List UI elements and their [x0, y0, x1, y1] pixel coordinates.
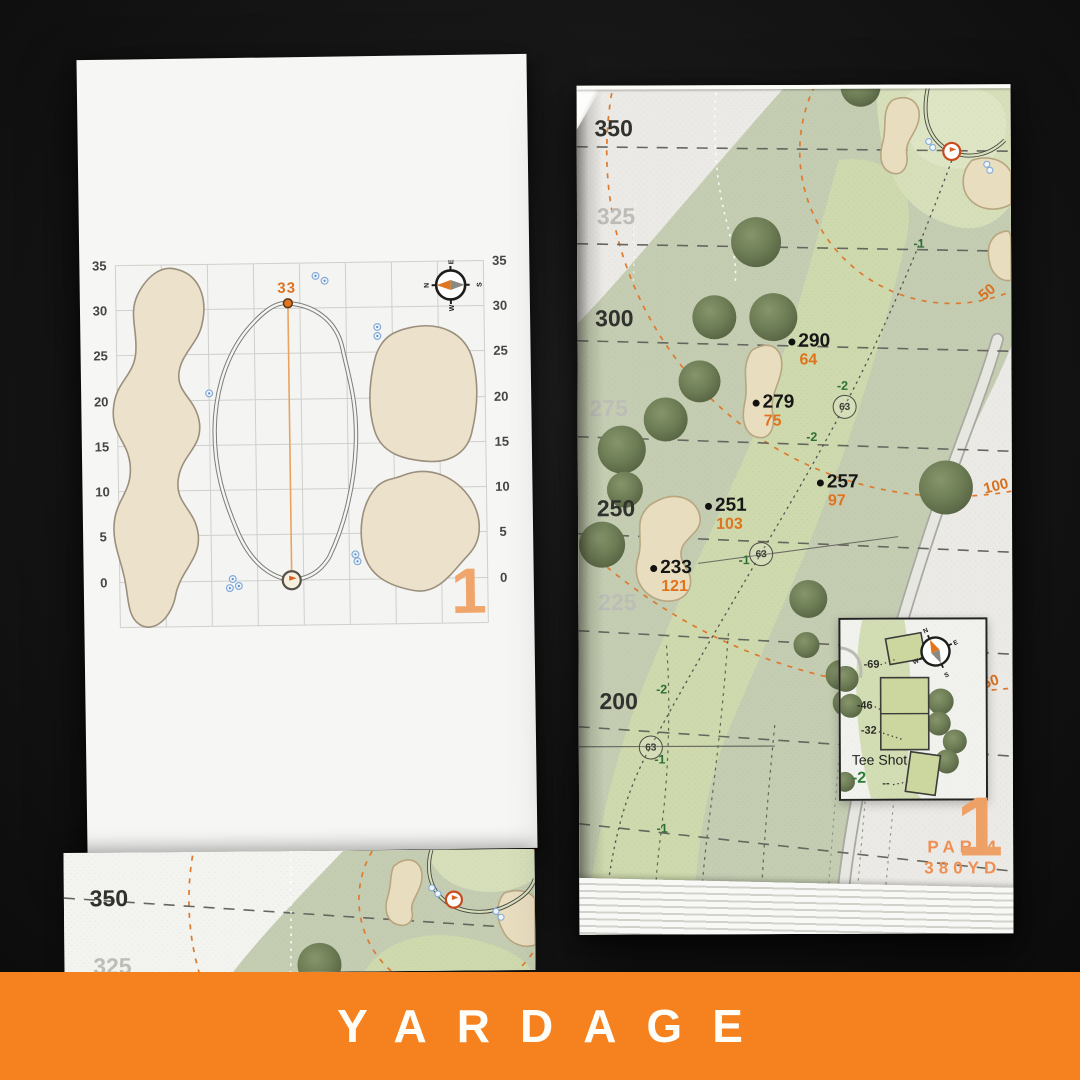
- axis-label-right: 25: [493, 343, 508, 358]
- yardage-ladder-label: 200: [599, 688, 637, 715]
- banner-title: YARDAGE: [307, 999, 773, 1053]
- axis-label-right: 30: [493, 298, 508, 313]
- center-marker: 63: [749, 542, 773, 566]
- distance-point-row: 251: [705, 495, 747, 517]
- point-distance: 290: [798, 330, 830, 352]
- yardage-ladder-label: 350: [90, 885, 129, 912]
- compass-w: W: [449, 304, 456, 311]
- green-detail-page: N E S W 3535303025252020151510105500 33 …: [76, 54, 537, 854]
- yardage-book-scene: N E S W 3535303025252020151510105500 33 …: [0, 0, 1080, 1080]
- axis-label-left: 15: [95, 439, 110, 454]
- distance-point-row: 257: [817, 471, 859, 493]
- next-hole-page: 350325: [63, 849, 535, 974]
- slope-label: -2: [656, 682, 667, 696]
- slope-label: -1: [913, 237, 924, 251]
- point-distance: 251: [715, 495, 747, 517]
- next-hole-map: [63, 849, 535, 974]
- point-front-distance: 103: [716, 516, 747, 534]
- tee-offset-label: -69: [864, 659, 880, 671]
- slope-label: -1: [739, 553, 750, 567]
- slope-label: -2: [806, 430, 817, 444]
- distance-point-row: 233: [650, 557, 692, 579]
- distance-point: 29064: [788, 330, 830, 369]
- distance-point: 233121: [650, 557, 692, 596]
- yardage-ladder-label: 350: [594, 115, 632, 142]
- hole-number: 1: [451, 559, 487, 623]
- distance-point-row: 279: [753, 392, 795, 414]
- tee-offset-label: -46: [857, 700, 873, 712]
- point-front-distance: 97: [828, 492, 859, 510]
- yardage-ladder-label: 275: [589, 395, 627, 422]
- green-depth-label: 33: [277, 280, 296, 297]
- compass-e: E: [448, 259, 455, 264]
- axis-label-left: 0: [100, 575, 107, 590]
- flag-icon: [283, 571, 301, 589]
- tee-shot-inset: N E S W -69-46-32-- Tee Shot -2: [838, 617, 988, 801]
- hole-info-block: PAR 4 380YD 1: [924, 836, 1001, 878]
- axis-label-right: 0: [500, 570, 507, 585]
- yardage-ladder-label: 325: [597, 203, 635, 230]
- axis-label-right: 15: [495, 434, 510, 449]
- axis-label-left: 25: [93, 348, 108, 363]
- axis-label-right: 20: [494, 389, 509, 404]
- slope-label: -1: [657, 821, 668, 835]
- axis-label-right: 35: [492, 253, 507, 268]
- point-front-distance: 75: [764, 413, 795, 431]
- slope-label: -2: [837, 379, 848, 393]
- point-front-distance: 64: [799, 351, 830, 369]
- yardage-ladder-label: 250: [597, 495, 635, 522]
- axis-label-right: 10: [495, 479, 510, 494]
- distance-point: 251103: [705, 495, 747, 534]
- point-front-distance: 121: [661, 578, 692, 596]
- point-distance: 257: [827, 471, 859, 493]
- distance-point-row: 290: [788, 330, 830, 352]
- tee-offset-label: --: [882, 778, 889, 790]
- distance-point: 25797: [817, 471, 859, 510]
- point-dot: [650, 565, 657, 572]
- axis-label-left: 10: [95, 484, 110, 499]
- green-detail-map: N E S W: [76, 54, 537, 854]
- flag-icon: [943, 143, 960, 160]
- axis-label-left: 20: [94, 394, 109, 409]
- title-banner: YARDAGE: [0, 972, 1080, 1080]
- tee-offset-label: -32: [861, 725, 877, 737]
- point-dot: [705, 502, 712, 509]
- tee-shot-value: -2: [852, 770, 866, 788]
- hole-map-page: 350325300275250225200 290642797525797251…: [577, 84, 1014, 935]
- axis-label-left: 35: [92, 258, 107, 273]
- point-dot: [817, 479, 824, 486]
- yardage-ladder-label: 225: [598, 589, 636, 616]
- tee-shot-title: Tee Shot: [852, 752, 907, 768]
- point-distance: 233: [660, 557, 692, 579]
- distance-point: 27975: [753, 392, 795, 431]
- point-dot: [753, 399, 760, 406]
- axis-label-left: 5: [99, 529, 106, 544]
- axis-label-left: 30: [93, 303, 108, 318]
- hole-map: [577, 84, 1014, 935]
- bunker-right-top: [369, 325, 478, 462]
- yardage-ladder-label: 300: [595, 305, 633, 332]
- compass-n: N: [424, 283, 431, 288]
- point-distance: 279: [763, 392, 795, 414]
- page-stack-edges: [577, 878, 1014, 935]
- axis-label-right: 5: [499, 524, 506, 539]
- compass-s: S: [477, 282, 484, 287]
- center-marker: 63: [833, 395, 857, 419]
- marker-cross-line: [579, 746, 775, 747]
- hole-number: 1: [956, 784, 1003, 868]
- slope-label: -1: [654, 752, 665, 766]
- point-dot: [788, 338, 795, 345]
- flag-icon: [446, 892, 462, 908]
- back-point-dot: [283, 299, 292, 308]
